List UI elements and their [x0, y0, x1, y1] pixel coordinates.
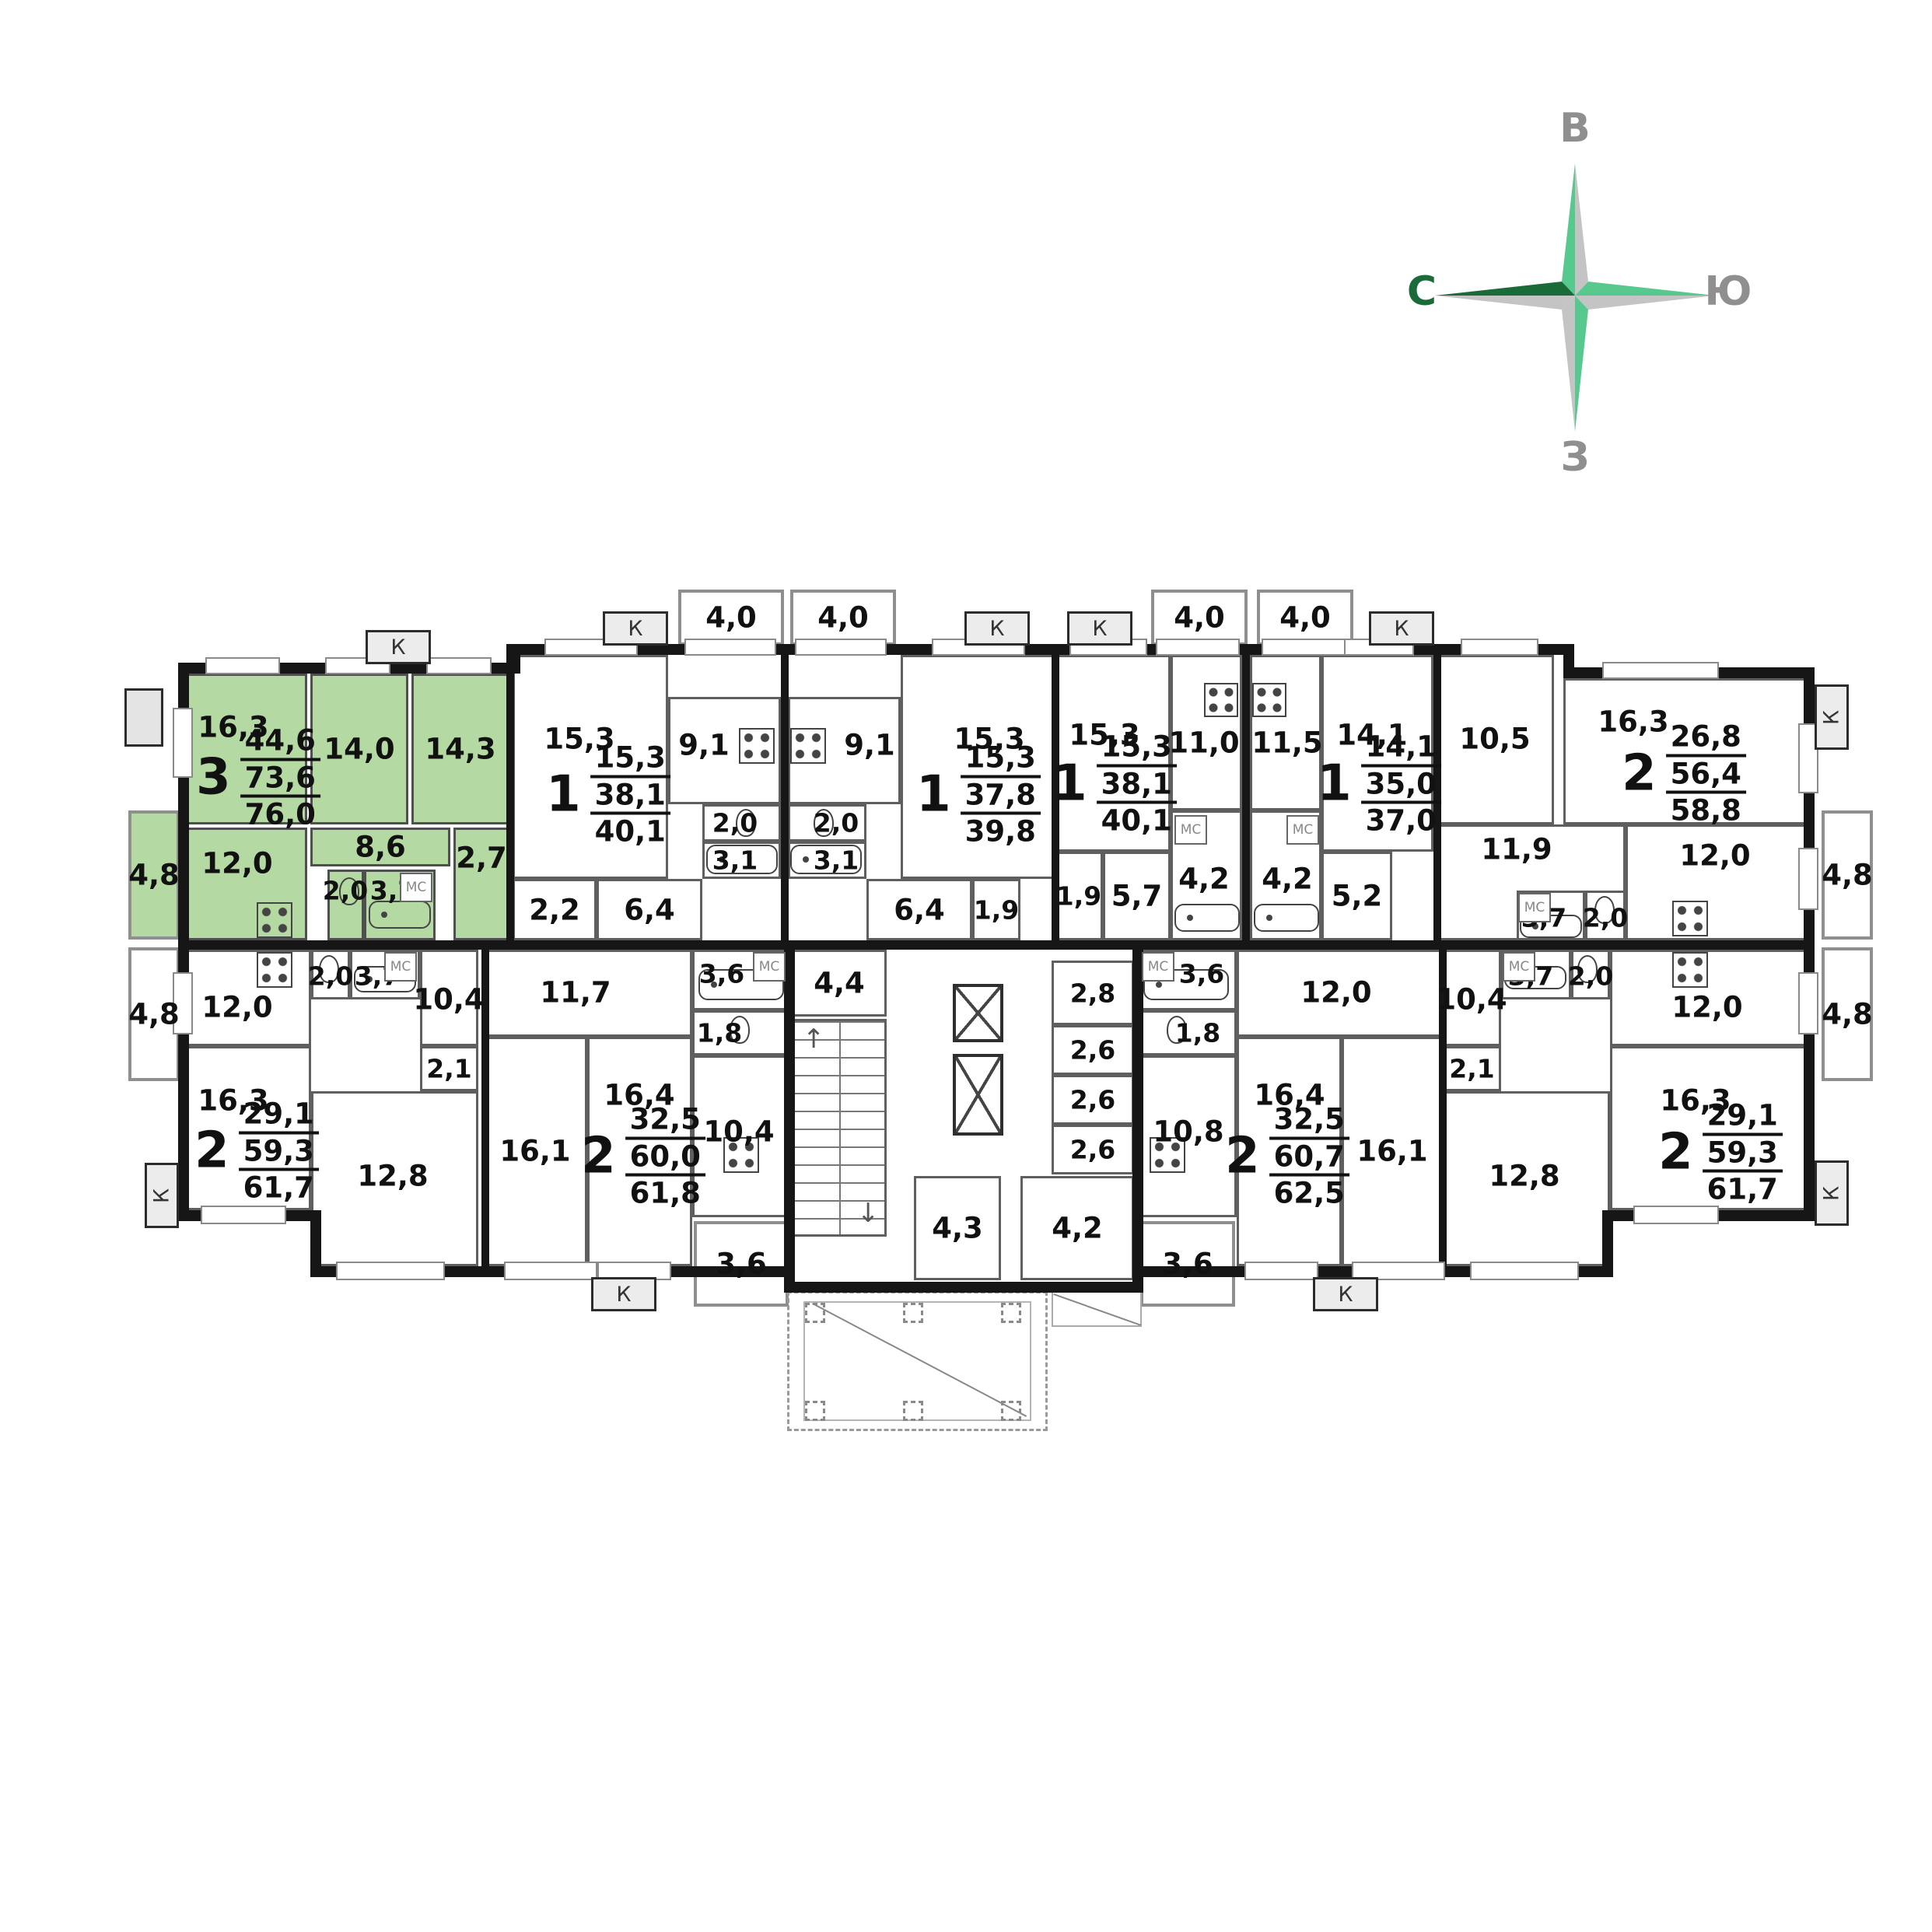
apartment-total-area: 61,7: [239, 1171, 319, 1206]
room-area-label: 3,6: [1162, 1248, 1213, 1281]
apartment-area: 59,3: [1703, 1136, 1783, 1173]
washing-machine-badge: МС: [753, 952, 786, 982]
window: [1262, 639, 1346, 656]
window: [1244, 1262, 1318, 1280]
apartment-area: 60,0: [625, 1139, 705, 1177]
apartment-area: 56,4: [1666, 757, 1746, 794]
stove-icon: [1204, 683, 1238, 717]
apartment-area: 60,7: [1269, 1139, 1349, 1177]
window: [504, 1262, 597, 1280]
room-area-label: 2,7: [456, 842, 507, 875]
balcony-badge: К: [1369, 611, 1434, 646]
apartment-total-area: 61,8: [625, 1177, 705, 1211]
room-area-label: 10,8: [1153, 1115, 1223, 1149]
room-area-label: 10,5: [1459, 723, 1530, 756]
balcony-badge: К: [964, 611, 1030, 646]
room-area-label: 12,8: [1489, 1160, 1559, 1193]
room-area-label: 11,5: [1251, 726, 1322, 760]
balcony-badge: К: [603, 611, 668, 646]
apartment-living-area: 15,3: [1097, 730, 1177, 768]
bath-icon: [1174, 904, 1240, 932]
apartment-rooms-count: 2: [581, 1132, 616, 1181]
room-area-label: 4,2: [1178, 863, 1230, 896]
room-area-label: 4,3: [932, 1212, 983, 1245]
room-area-label: 8,6: [355, 831, 406, 864]
stove-icon: [1672, 952, 1708, 988]
stove-icon: [790, 728, 826, 764]
window: [1461, 639, 1538, 656]
apartment-living-area: 29,1: [239, 1097, 319, 1135]
apartment-living-area: 15,3: [590, 741, 670, 779]
room-area-label: 1,8: [1175, 1018, 1220, 1048]
room-area-label: 4,8: [128, 998, 180, 1031]
washing-machine-badge: МС: [384, 952, 417, 982]
room-area-label: 14,0: [324, 733, 394, 766]
room-area-label: 2,1: [426, 1054, 471, 1084]
apartment-total-area: 37,0: [1361, 804, 1441, 838]
room-area-label: 12,0: [1679, 839, 1750, 873]
room-area-label: 2,0: [814, 808, 859, 838]
room-area-label: 1,8: [697, 1018, 742, 1048]
room-area-label: 4,4: [814, 967, 865, 1000]
washing-machine-badge: МС: [1503, 952, 1535, 982]
apartment-living-area: 32,5: [1269, 1103, 1349, 1140]
balcony-badge: К: [591, 1277, 656, 1311]
apartment-summary[interactable]: 232,560,762,5: [1225, 1103, 1349, 1211]
window: [1798, 972, 1818, 1034]
room-area-label: 12,0: [1300, 976, 1371, 1010]
room-area-label: 4,0: [1279, 601, 1331, 635]
balcony-badge: К: [1815, 1160, 1849, 1226]
column-marker: [805, 1401, 825, 1421]
room-area-label: 2,0: [323, 876, 368, 906]
room-area-label: 11,7: [540, 976, 611, 1010]
stairs-down-arrow: ↓: [857, 1198, 880, 1229]
room-area-label: 9,1: [844, 729, 895, 762]
stove-icon: [739, 728, 775, 764]
apartment-rooms-count: 2: [194, 1126, 229, 1176]
balcony-badge: К: [1067, 611, 1132, 646]
washing-machine-badge: МС: [1286, 815, 1319, 845]
room-area-label: 6,4: [894, 893, 945, 926]
balcony-badge: К: [1313, 1277, 1378, 1311]
apartment-total-area: 61,7: [1703, 1173, 1783, 1207]
window: [173, 708, 193, 778]
balcony-badge: К: [1815, 684, 1849, 750]
room-area-label: 5,2: [1332, 880, 1383, 913]
wall-segment: [781, 644, 789, 945]
floorplan-page: В Ю З С ↑ ↓ 16,314,014,312,08,62,03,72,7…: [0, 0, 1932, 1932]
apartment-living-area: 15,3: [961, 741, 1041, 779]
room-area-label: 4,0: [817, 601, 869, 635]
wall-segment: [784, 1282, 1143, 1293]
apartment-total-area: 39,8: [961, 815, 1041, 849]
apartment-summary[interactable]: 229,159,361,7: [194, 1097, 319, 1206]
window: [426, 657, 492, 674]
room-area-label: 16,1: [1356, 1135, 1427, 1168]
washing-machine-badge: МС: [1174, 815, 1207, 845]
apartment-area: 38,1: [1097, 767, 1177, 804]
apartment-rooms-count: 1: [546, 770, 581, 820]
apartment-summary[interactable]: 115,338,140,1: [546, 741, 670, 849]
room-area-label: 2,6: [1070, 1135, 1115, 1165]
room-area-label: 3,1: [814, 845, 859, 876]
stove-icon: [1252, 683, 1286, 717]
wall-segment: [509, 644, 1574, 655]
room-area-label: 12,0: [1671, 991, 1742, 1024]
window: [336, 1262, 445, 1280]
room-area-label: 4,2: [1052, 1212, 1103, 1245]
apartment-total-area: 62,5: [1269, 1177, 1349, 1211]
room-area-label: 10,4: [413, 983, 484, 1017]
room-area-label: 3,6: [699, 959, 744, 989]
room-area-label: 4,8: [1822, 859, 1873, 892]
window: [795, 639, 887, 656]
stove-icon: [257, 902, 292, 938]
window: [1470, 1262, 1579, 1280]
room-area-label: 4,8: [1822, 998, 1873, 1031]
wall-segment: [784, 940, 795, 1293]
apartment-total-area: 76,0: [240, 798, 320, 832]
window: [1798, 848, 1818, 910]
room-area-label: 2,0: [308, 961, 353, 992]
window: [205, 657, 280, 674]
room-area-label: 12,8: [357, 1160, 428, 1193]
bath-icon: [1254, 904, 1319, 932]
room-area-label: 12,0: [201, 991, 272, 1024]
apartment-summary[interactable]: 115,337,839,8: [916, 741, 1041, 849]
column-marker: [1001, 1303, 1021, 1323]
room-area-label: 5,7: [1111, 880, 1163, 913]
apartment-rooms-count: 1: [1052, 759, 1087, 809]
room-area-label: 3,6: [1179, 959, 1224, 989]
washing-machine-badge: МС: [1142, 952, 1174, 982]
apartment-total-area: 40,1: [590, 815, 670, 849]
stairs-up-arrow: ↑: [803, 1024, 825, 1055]
stove-icon: [1672, 901, 1708, 936]
room-area-label: 1,9: [1056, 881, 1101, 912]
balcony-badge: К: [366, 630, 431, 664]
wall-segment: [1242, 644, 1250, 945]
apartment-total-area: 58,8: [1666, 794, 1746, 828]
elevator-icon: [953, 1054, 1003, 1136]
washing-machine-badge: МС: [400, 873, 432, 902]
room-area-label: 2,8: [1070, 978, 1115, 1008]
apartment-summary[interactable]: 114,135,037,0: [1317, 730, 1441, 838]
room-area-label: 2,0: [1583, 903, 1628, 933]
room-area-label: 1,9: [974, 894, 1019, 925]
elevator-icon: [953, 984, 1003, 1042]
apartment-area: 59,3: [239, 1134, 319, 1171]
apartment-summary[interactable]: 226,856,458,8: [1622, 720, 1746, 828]
room-area-label: 10,4: [703, 1115, 774, 1149]
apartment-area: 38,1: [590, 778, 670, 815]
room-area-label: 12,0: [201, 847, 272, 880]
window: [201, 1206, 286, 1224]
apartment-rooms-count: 2: [1622, 749, 1657, 799]
room-area-label: 14,3: [425, 733, 495, 766]
apartment-rooms-count: 2: [1225, 1132, 1260, 1181]
window: [1156, 639, 1240, 656]
room-area-label: 3,6: [716, 1248, 767, 1281]
apartment-living-area: 26,8: [1666, 720, 1746, 758]
room-area-label: 6,4: [624, 893, 675, 926]
apartment-summary[interactable]: 115,338,140,1: [1052, 730, 1177, 838]
room-area-label: 9,1: [678, 729, 730, 762]
apartment-rooms-count: 2: [1658, 1128, 1693, 1178]
room-area-label: 2,1: [1449, 1054, 1494, 1084]
column-marker: [903, 1303, 923, 1323]
wall-segment: [506, 644, 514, 945]
room-area-label: 16,1: [499, 1135, 570, 1168]
room-area-label: 4,0: [705, 601, 757, 635]
apartment-summary-highlighted[interactable]: 344,673,676,0: [196, 724, 320, 832]
facade-pilaster: [124, 688, 163, 747]
column-marker: [903, 1401, 923, 1421]
window: [684, 639, 776, 656]
apartment-rooms-count: 1: [1317, 759, 1352, 809]
apartment-rooms-count: 1: [916, 770, 951, 820]
window: [1633, 1206, 1719, 1224]
room-area-label: 2,6: [1070, 1035, 1115, 1066]
apartment-living-area: 29,1: [1703, 1099, 1783, 1136]
stove-icon: [257, 952, 292, 988]
balcony-badge: К: [145, 1163, 179, 1228]
wall-segment: [1132, 940, 1143, 1293]
apartment-rooms-count: 3: [196, 753, 231, 803]
apartment-total-area: 40,1: [1097, 804, 1177, 838]
room-area-label: 2,0: [1568, 961, 1613, 992]
apartment-area: 73,6: [240, 761, 320, 798]
room-area-label: 11,0: [1168, 726, 1239, 760]
apartment-living-area: 14,1: [1361, 730, 1441, 768]
washing-machine-badge: МС: [1518, 893, 1551, 922]
window: [1602, 662, 1719, 679]
room-area-label: 11,9: [1481, 833, 1552, 866]
room-area-label: 2,2: [529, 893, 580, 926]
entrance-porch: [787, 1291, 1048, 1431]
room-area-label: 10,4: [1436, 983, 1507, 1017]
room-area-label: 4,2: [1262, 863, 1313, 896]
floor-plan: ↑ ↓ 16,314,014,312,08,62,03,72,74,815,39…: [0, 0, 1932, 1932]
apartment-area: 35,0: [1361, 767, 1441, 804]
apartment-summary[interactable]: 232,560,061,8: [581, 1103, 705, 1211]
apartment-living-area: 44,6: [240, 724, 320, 761]
room-area-label: 2,0: [712, 808, 758, 838]
room-area-label: 2,6: [1070, 1085, 1115, 1115]
room-area-label: 4,8: [128, 859, 180, 892]
room-area-label: 4,0: [1174, 601, 1225, 635]
wall-segment: [178, 940, 1815, 950]
apartment-area: 37,8: [961, 778, 1041, 815]
apartment-living-area: 32,5: [625, 1103, 705, 1140]
apartment-summary[interactable]: 229,159,361,7: [1658, 1099, 1783, 1207]
room-area-label: 3,1: [712, 845, 758, 876]
